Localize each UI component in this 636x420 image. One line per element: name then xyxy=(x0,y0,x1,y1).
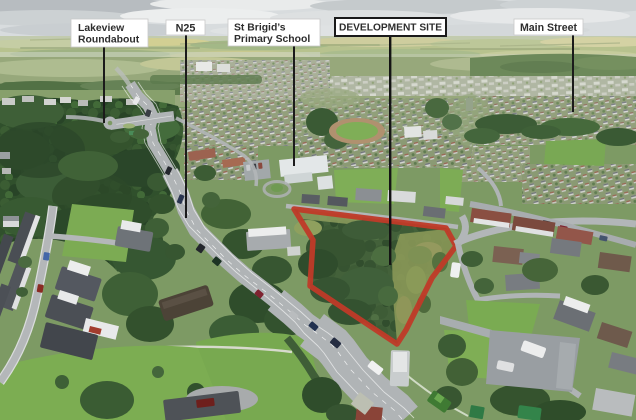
svg-text:Roundabout: Roundabout xyxy=(78,35,140,46)
svg-text:Main Street: Main Street xyxy=(520,22,578,34)
svg-text:N25: N25 xyxy=(176,23,196,35)
svg-text:DEVELOPMENT SITE: DEVELOPMENT SITE xyxy=(339,23,442,34)
svg-text:Primary School: Primary School xyxy=(234,34,310,45)
svg-text:St Brigid’s: St Brigid’s xyxy=(234,23,286,34)
svg-text:Lakeview: Lakeview xyxy=(78,23,125,34)
